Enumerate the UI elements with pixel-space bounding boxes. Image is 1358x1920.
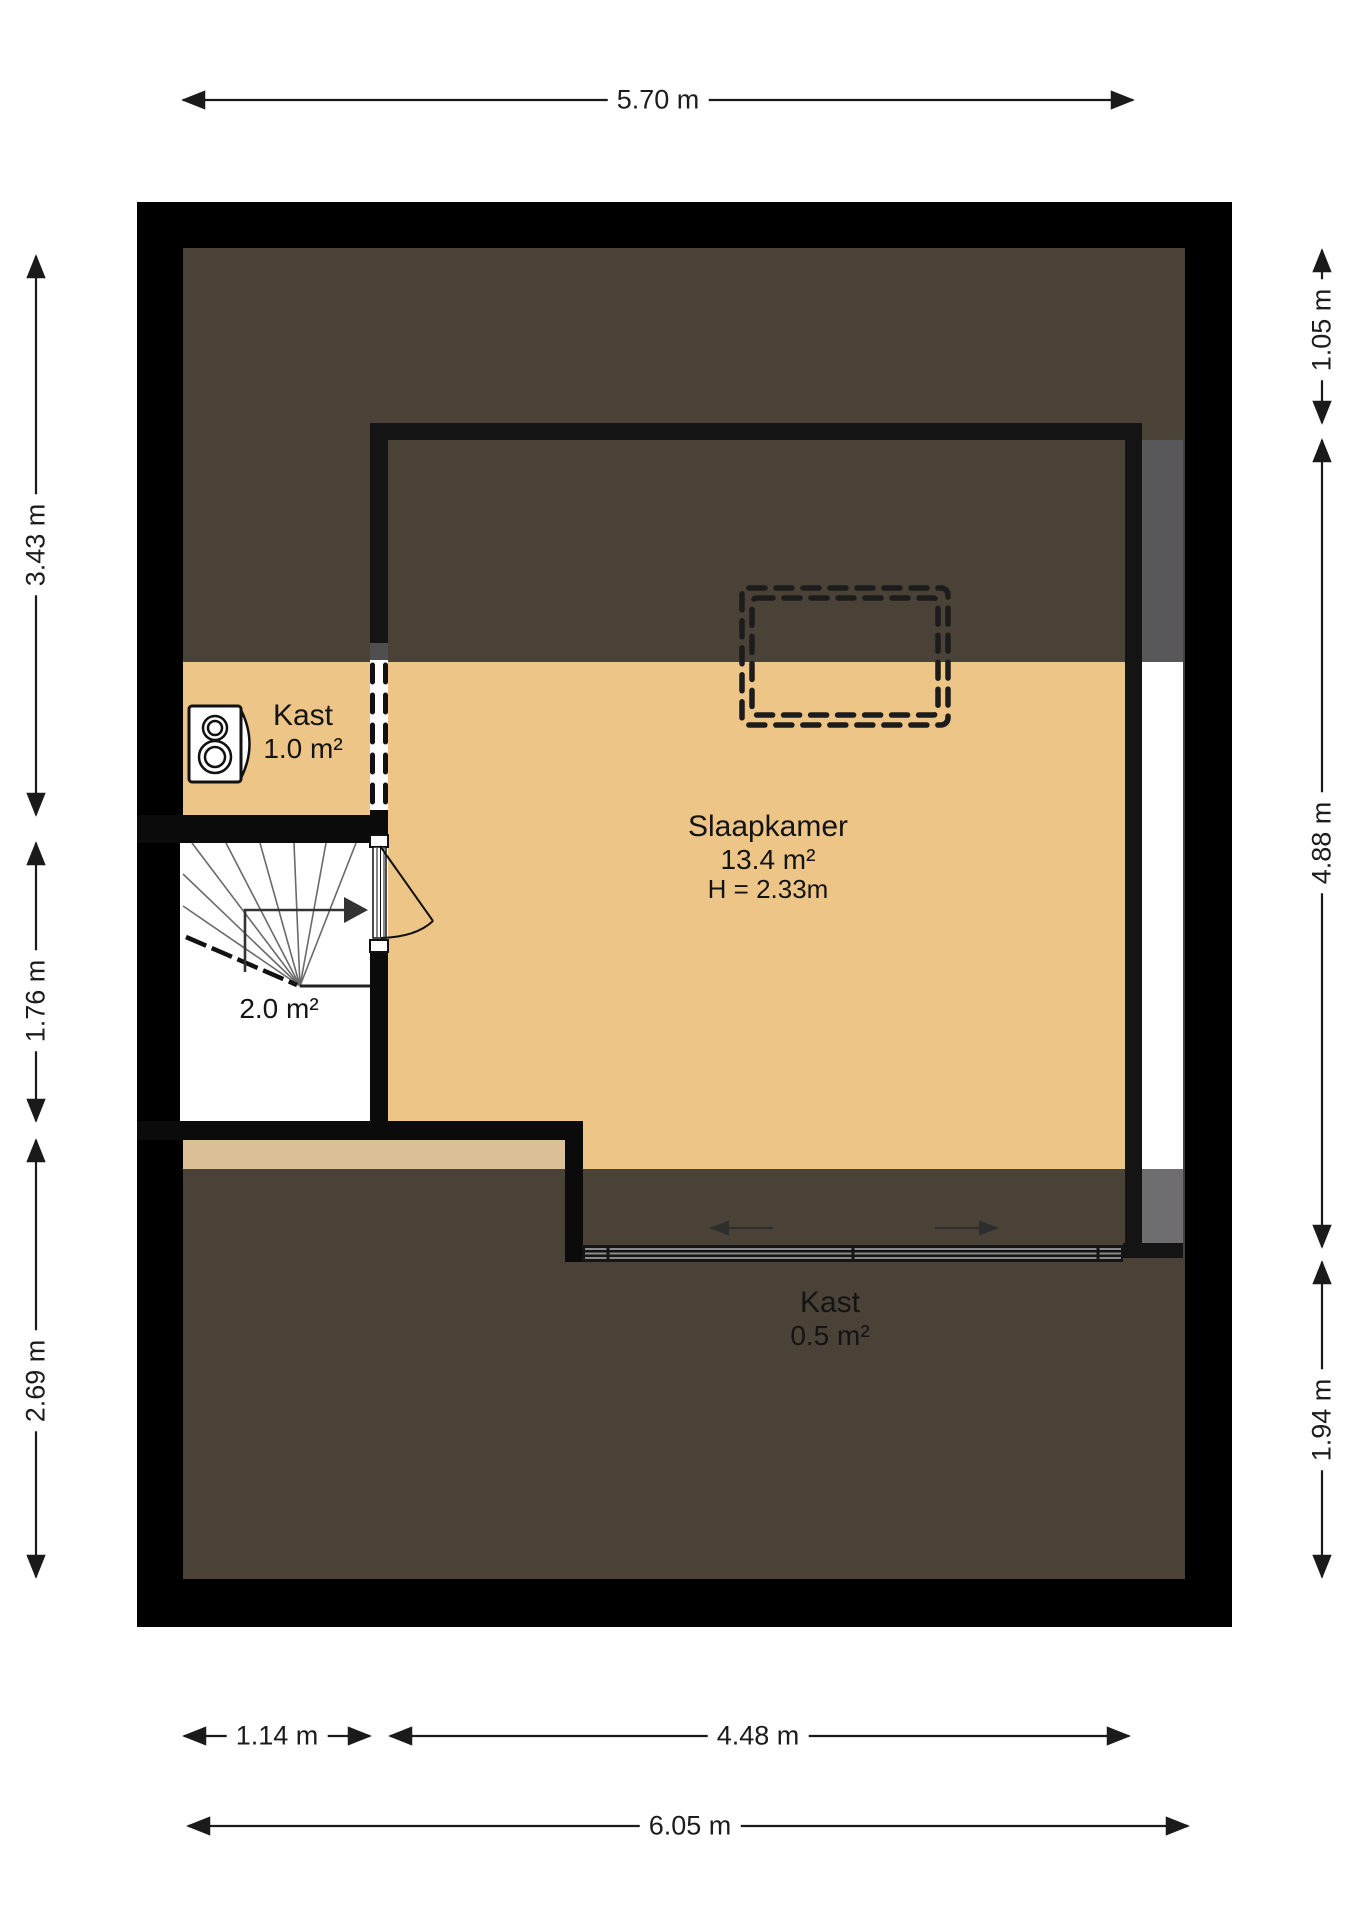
dim-bottom-right-width: 4.48 m — [708, 1720, 809, 1753]
closet-top-area: 1.0 m² — [223, 733, 383, 764]
wall-window-cap — [1123, 1243, 1183, 1258]
bedroom-name: Slaapkamer — [638, 810, 898, 844]
bedroom-floor — [388, 662, 1125, 1169]
closet-bottom-area: 0.5 m² — [730, 1320, 930, 1351]
bedroom-area: 13.4 m² — [638, 844, 898, 875]
closet-top-label: Kast 1.0 m² — [223, 699, 383, 764]
window-strip-dark — [1142, 440, 1183, 662]
dim-left-top-height: 3.43 m — [20, 495, 53, 596]
dim-right-middle-height: 4.88 m — [1306, 793, 1339, 894]
closet-bottom-name: Kast — [730, 1286, 930, 1320]
wall-step — [565, 1121, 583, 1262]
closet-top-name: Kast — [223, 699, 383, 733]
dim-bottom-total-width: 6.05 m — [640, 1810, 741, 1843]
wall-bedroom-right — [1125, 423, 1142, 1258]
wall-door-top — [370, 810, 388, 835]
dim-top-width: 5.70 m — [608, 84, 709, 117]
dim-left-bottom-height: 2.69 m — [20, 1331, 53, 1432]
floorplan-canvas: Kast 1.0 m² Slaapkamer 13.4 m² H = 2.33m… — [0, 0, 1358, 1920]
stairwell-floor — [180, 843, 370, 1121]
wall-bedroom-top — [371, 423, 1142, 440]
window-strip-glass — [1142, 662, 1183, 1169]
dim-left-middle-height: 1.76 m — [20, 951, 53, 1052]
bedroom-ceiling-height: H = 2.33m — [638, 875, 898, 904]
dim-right-bottom-height: 1.94 m — [1306, 1370, 1339, 1471]
wall-below-door — [370, 952, 388, 1140]
closet-bottom-label: Kast 0.5 m² — [730, 1286, 930, 1351]
window-strip-light — [1142, 1169, 1183, 1243]
bedroom-label: Slaapkamer 13.4 m² H = 2.33m — [638, 810, 898, 904]
wall-stairwell-bottom — [137, 1121, 583, 1140]
wall-closet-bottom — [137, 815, 388, 843]
dim-right-top-height: 1.05 m — [1306, 280, 1339, 381]
opening-door-bg — [370, 847, 388, 940]
stairwell-label: 2.0 m² — [199, 993, 359, 1024]
wall-bedroom-left-upper — [370, 423, 388, 662]
landing-floor — [183, 1140, 567, 1169]
stairwell-area: 2.0 m² — [199, 993, 359, 1024]
dim-bottom-left-width: 1.14 m — [227, 1720, 328, 1753]
